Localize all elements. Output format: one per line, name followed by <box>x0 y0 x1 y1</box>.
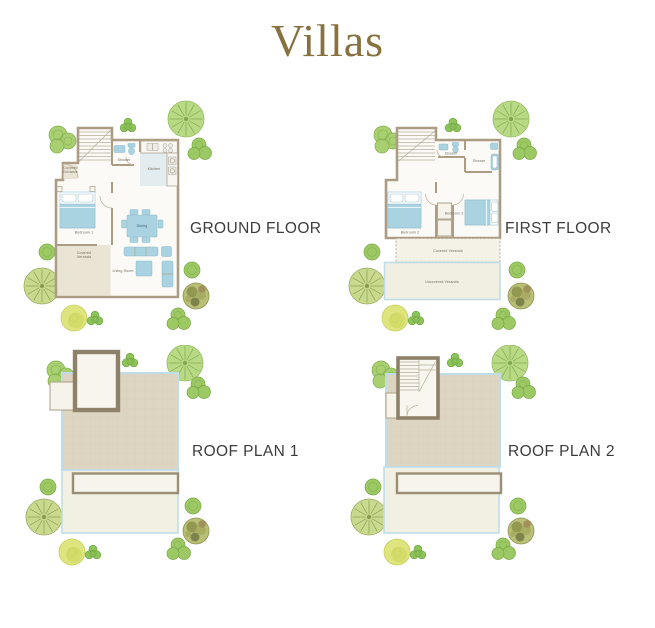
clover-tree-icon <box>122 353 138 367</box>
bush-tree-icon <box>509 262 525 278</box>
bush-tree-icon <box>167 538 191 560</box>
ground-floor-cell: CoveredEntrance Shower Kitchen Bedroom 1… <box>0 90 328 345</box>
kitchen-label: Kitchen <box>148 167 161 171</box>
clover-tree-icon <box>410 545 426 559</box>
first-floor-caption: FIRST FLOOR <box>505 220 612 237</box>
bedroom-3-label: Bedroom 3 <box>445 212 463 216</box>
bush-tree-icon <box>185 498 201 514</box>
olive-tree-icon <box>183 283 209 309</box>
clover-tree-icon <box>408 311 424 325</box>
bed <box>57 187 95 229</box>
uncovered-veranda-label: Uncovered Veranda <box>425 280 459 284</box>
palm-tree-icon <box>349 268 385 304</box>
clover-tree-icon <box>447 353 463 367</box>
olive-tree-icon <box>508 283 534 309</box>
clover-tree-icon <box>445 118 461 132</box>
stair-enclosure <box>75 352 118 410</box>
bush-tree-icon <box>40 479 56 495</box>
yellow-tree-icon <box>61 305 87 331</box>
roof-plan-2 <box>328 345 655 628</box>
bush-tree-icon <box>167 308 191 330</box>
clover-tree-icon <box>85 545 101 559</box>
palm-tree-icon <box>493 101 529 137</box>
roof-plan-2-caption: ROOF PLAN 2 <box>508 443 615 460</box>
plans-grid: CoveredEntrance Shower Kitchen Bedroom 1… <box>0 90 655 628</box>
shower-label: Shower <box>118 158 131 162</box>
palm-tree-icon <box>168 101 204 137</box>
palm-tree-icon <box>24 268 60 304</box>
shower-label: Shower <box>473 159 486 163</box>
palm-tree-icon <box>26 499 62 535</box>
bush-tree-icon <box>492 538 516 560</box>
first-floor-cell: Shower Shower Bedroom 2 Bedroom 3 Covere… <box>328 90 655 345</box>
roof-plan-1-cell: ROOF PLAN 1 <box>0 345 328 628</box>
ground-floor-plan: CoveredEntrance Shower Kitchen Bedroom 1… <box>0 90 328 345</box>
palm-tree-icon <box>351 499 387 535</box>
covered-entrance-label: CoveredEntrance <box>63 166 78 174</box>
roof-structures <box>384 358 501 533</box>
bedroom-1-label: Bedroom 1 <box>75 231 93 235</box>
bush-tree-icon <box>188 138 212 160</box>
page-title: Villas <box>0 0 655 90</box>
stair-enclosure <box>398 358 438 418</box>
first-floor-plan: Shower Shower Bedroom 2 Bedroom 3 Covere… <box>328 90 655 345</box>
villas-floor-plans-page: Villas <box>0 0 655 628</box>
dining-label: Dining <box>137 224 148 228</box>
shower-label: Shower <box>445 152 458 156</box>
bush-tree-icon <box>49 126 76 153</box>
bush-tree-icon <box>364 244 380 260</box>
bush-tree-icon <box>365 479 381 495</box>
roof-structures <box>50 352 178 533</box>
bush-tree-icon <box>184 262 200 278</box>
covered-veranda-label: CoveredVeranda <box>77 251 91 259</box>
yellow-tree-icon <box>59 539 85 565</box>
bed <box>388 192 421 228</box>
bush-tree-icon <box>510 498 526 514</box>
covered-veranda-label: Covered Veranda <box>433 249 463 253</box>
ground-floor-caption: GROUND FLOOR <box>190 220 321 237</box>
yellow-tree-icon <box>382 305 408 331</box>
clover-tree-icon <box>87 311 103 325</box>
clover-tree-icon <box>120 118 136 132</box>
olive-tree-icon <box>183 518 209 544</box>
roof-plan-1 <box>0 345 328 628</box>
bush-tree-icon <box>513 138 537 160</box>
bush-tree-icon <box>39 244 55 260</box>
bedroom-2-label: Bedroom 2 <box>401 231 419 235</box>
living-room-label: Living Room <box>112 269 133 273</box>
bush-tree-icon <box>492 308 516 330</box>
olive-tree-icon <box>508 518 534 544</box>
roof-plan-2-cell: ROOF PLAN 2 <box>328 345 655 628</box>
yellow-tree-icon <box>384 539 410 565</box>
bed <box>465 200 498 225</box>
roof-plan-1-caption: ROOF PLAN 1 <box>192 443 299 460</box>
